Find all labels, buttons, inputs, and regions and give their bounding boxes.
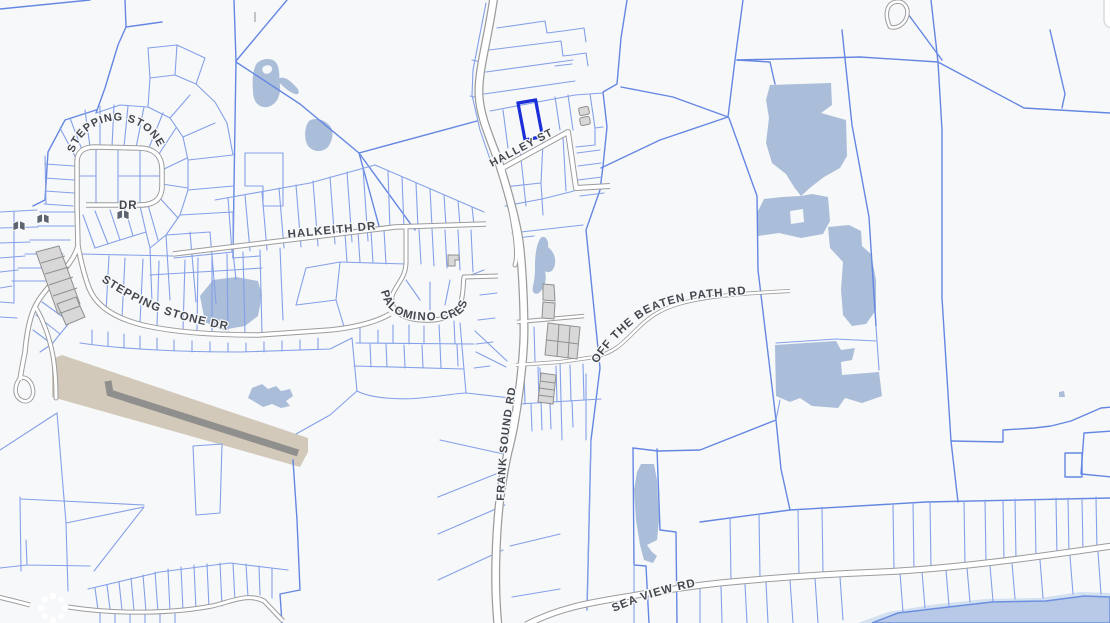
svg-text:DR: DR: [119, 200, 138, 212]
